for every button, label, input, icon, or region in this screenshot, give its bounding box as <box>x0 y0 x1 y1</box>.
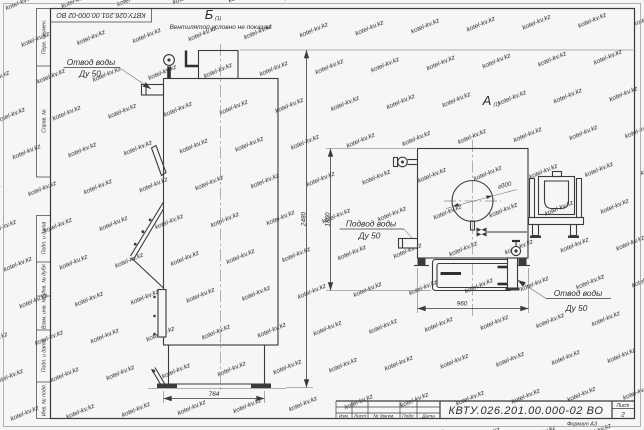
frame-label-perv-primen: Перв. примен. <box>42 20 48 54</box>
front-dim-width: 960 <box>457 301 468 308</box>
front-outlet-label: Отвод воды <box>554 288 602 298</box>
format-note: Формат А3 <box>567 422 598 428</box>
front-view-label: А <box>482 93 492 108</box>
frame-label-inv-podl: Инв. № подл. <box>42 384 48 416</box>
drawing-canvas: kotel-kv.kz kotel-kv.kz Перв. примен. Сп… <box>0 0 644 430</box>
frame-label-vzam-inv: Взам. инв. № <box>42 297 48 329</box>
tb-col-docnum: № докум. <box>373 413 394 419</box>
front-inlet-label: Подвод воды <box>346 219 396 229</box>
tb-col-data: Дата <box>421 413 435 419</box>
tb-col-podp: Подп. <box>402 413 415 419</box>
tb-doc-number: КВТУ.026.201.00.000-02 ВО <box>448 405 603 417</box>
front-dim-height: 1850 <box>325 212 332 227</box>
tb-col-list: Лист <box>353 413 366 419</box>
tb-sheet-label: Лист <box>616 403 630 409</box>
frame-label-podp-data-1: Подп. и дата <box>42 222 48 255</box>
frame-label-inv-dubl: Инв. № дубл. <box>42 263 48 295</box>
frame-label-podp-data-2: Подп. и дата <box>42 340 48 373</box>
side-outlet-dn: Ду 50 <box>78 69 101 79</box>
front-inlet-dn: Ду 50 <box>358 231 381 241</box>
side-outlet-label: Отвод воды <box>67 57 115 67</box>
side-view-label-index: (1) <box>215 16 222 22</box>
side-view-note: Вентилятор условно не показан <box>169 24 271 31</box>
side-dim-height: 2480 <box>301 211 308 227</box>
front-view-label-index: (1) <box>494 102 501 108</box>
top-stamp-doc-number: КВТУ.026.201.00.000-02 ВО <box>56 11 146 18</box>
frame-label-sprav-n: Справ. № <box>42 109 48 133</box>
side-dim-width: 764 <box>209 391 220 398</box>
front-outlet-dn: Ду 50 <box>565 303 588 313</box>
side-view-label: Б <box>205 7 214 22</box>
tb-col-izm: Изм. <box>339 413 349 419</box>
drawing-sheet: kotel-kv.kz kotel-kv.kz Перв. примен. Сп… <box>0 0 644 430</box>
tb-sheet-number: 2 <box>620 412 625 419</box>
